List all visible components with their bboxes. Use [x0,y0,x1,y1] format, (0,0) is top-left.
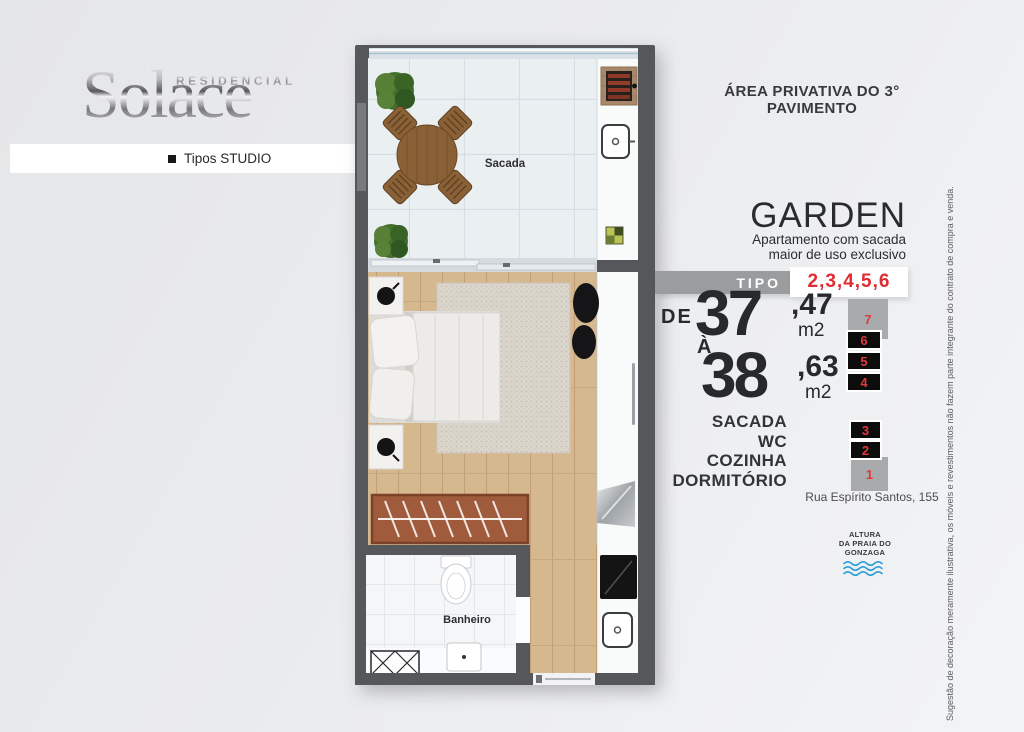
building-floor-2: 2 [849,440,882,460]
wardrobe-rack [372,495,528,543]
banheiro-label: Banheiro [443,614,491,626]
area-to-int: 38 [701,343,766,407]
page: RESIDENCIAL Solace Tipos STUDIO [0,0,1024,732]
logo-solace: Solace [82,60,251,128]
sacada-label: Sacada [485,158,526,170]
building-floor-3: 3 [849,420,882,440]
beach-line3: GONZAGA [826,548,904,557]
floorplan-svg: Sacada [355,45,655,685]
beach-height-note: ALTURA DA PRAIA DO GONZAGA [826,530,904,580]
grill-icon [601,67,637,105]
nightstand [369,425,403,469]
plant-icon [375,72,415,110]
garden-subtitle: Apartamento com sacada maior de uso excl… [706,233,906,262]
bathroom-wall-top [366,545,530,555]
area-to-dec: ,63 [797,350,839,384]
bathroom-door-opening [516,597,530,643]
area-to-unit: m2 [805,382,831,404]
building-floor-5: 5 [846,351,882,371]
page-title: ÁREA PRIVATIVA DO 3° PAVIMENTO [686,83,938,117]
balcony-left-window [357,103,366,191]
kitchen-sink-icon [603,613,632,647]
building-floor-6: 6 [846,330,882,350]
street-address: Rua Espírito Santos, 155 [797,490,947,504]
building-floor-1: 1 [851,457,888,491]
studio-type-label: Tipos STUDIO [184,151,271,166]
room-item: DORMITÓRIO [615,471,787,491]
beach-line1: ALTURA [826,530,904,539]
waves-icon [842,560,888,578]
rooms-list: SACADA WC COZINHA DORMITÓRIO [615,412,787,490]
garden-subtitle-line1: Apartamento com sacada [706,233,906,248]
room-item: WC [615,432,787,452]
area-from-dec: ,47 [791,288,833,322]
bed [369,311,500,423]
entry-door [533,673,595,685]
room-item: SACADA [615,412,787,432]
cooktop-icon [600,555,637,599]
room-item: COZINHA [615,451,787,471]
studio-type-band: Tipos STUDIO [10,144,359,173]
legal-disclaimer: Sugestão de decoração meramente ilustrat… [943,163,957,721]
shower-tray-icon [447,643,481,671]
floorplan: Sacada [355,45,655,685]
garden-title: GARDEN [706,196,906,236]
balcony-tray-icon [606,227,623,244]
area-from-unit: m2 [798,320,824,342]
sliding-door [368,258,597,272]
building-floor-4: 4 [846,372,882,392]
bottom-wall [355,673,655,685]
stool [572,325,596,359]
kitchen-floor [530,545,597,673]
nightstand [369,277,403,315]
garden-subtitle-line2: maior de uso exclusivo [706,248,906,263]
stool [573,283,599,323]
drying-rack-icon [371,651,419,675]
toilet-icon [441,556,471,604]
beach-line2: DA PRAIA DO [826,539,904,548]
area-from-prefix: DE [661,306,693,329]
square-bullet-icon [168,155,176,163]
plant-icon [374,224,408,258]
